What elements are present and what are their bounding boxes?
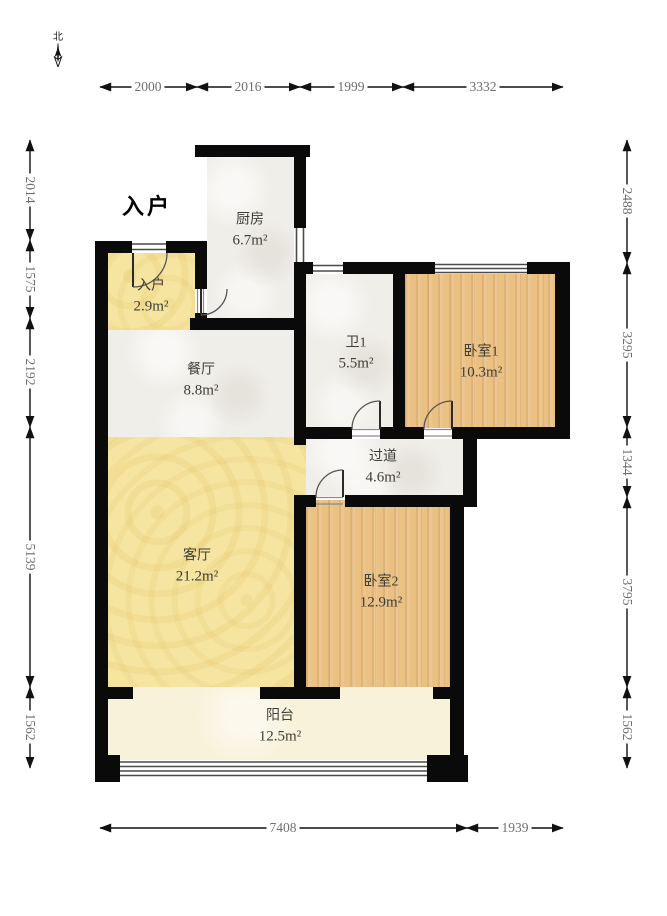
dim-left-3: 2192 — [22, 356, 38, 389]
room-area: 6.7m² — [233, 230, 268, 250]
room-name: 过道 — [366, 448, 401, 467]
room-name: 阳台 — [259, 707, 301, 726]
dim-left-2: 1575 — [22, 263, 38, 296]
room-area: 10.3m² — [460, 362, 502, 382]
dim-bottom-2: 1939 — [499, 820, 532, 836]
room-area: 2.9m² — [134, 296, 169, 316]
room-area: 12.5m² — [259, 726, 301, 746]
dim-left-4: 5139 — [22, 541, 38, 574]
dimension-lines — [30, 87, 627, 828]
dim-left-1: 2014 — [22, 174, 38, 207]
dim-top-1: 2000 — [132, 79, 165, 95]
walls — [95, 145, 570, 782]
room-name: 卧室1 — [460, 343, 502, 362]
room-label-bedroom1: 卧室1 10.3m² — [460, 343, 502, 382]
room-label-bedroom2: 卧室2 12.9m² — [360, 573, 402, 612]
room-label-dining: 餐厅 8.8m² — [184, 361, 219, 400]
dim-top-3: 1999 — [335, 79, 368, 95]
dim-right-2: 3295 — [619, 329, 635, 362]
dim-right-3: 1344 — [619, 446, 635, 479]
dim-right-1: 2488 — [619, 185, 635, 218]
dim-left-5: 1562 — [22, 711, 38, 744]
room-name: 卫1 — [339, 334, 374, 353]
room-name: 厨房 — [233, 211, 268, 230]
room-name: 餐厅 — [184, 361, 219, 380]
room-label-entry: 入户 2.9m² — [134, 277, 169, 316]
floorplan-drawing — [0, 0, 667, 916]
room-label-bath1: 卫1 5.5m² — [339, 334, 374, 373]
room-label-balcony: 阳台 12.5m² — [259, 707, 301, 746]
dim-top-2: 2016 — [232, 79, 265, 95]
room-area: 8.8m² — [184, 380, 219, 400]
entry-marker-label: 入户 — [122, 189, 172, 221]
room-label-hallway: 过道 4.6m² — [366, 448, 401, 487]
room-area: 5.5m² — [339, 353, 374, 373]
room-area: 21.2m² — [176, 566, 218, 586]
dim-bottom-1: 7408 — [267, 820, 300, 836]
dim-top-4: 3332 — [467, 79, 500, 95]
room-area: 4.6m² — [366, 467, 401, 487]
dim-right-5: 1562 — [619, 711, 635, 744]
room-name: 客厅 — [176, 547, 218, 566]
room-name: 入户 — [134, 277, 169, 296]
room-name: 卧室2 — [360, 573, 402, 592]
dim-right-4: 3795 — [619, 576, 635, 609]
floorplan-page: 北 — [0, 0, 667, 916]
room-area: 12.9m² — [360, 592, 402, 612]
room-label-living: 客厅 21.2m² — [176, 547, 218, 586]
room-label-kitchen: 厨房 6.7m² — [233, 211, 268, 250]
